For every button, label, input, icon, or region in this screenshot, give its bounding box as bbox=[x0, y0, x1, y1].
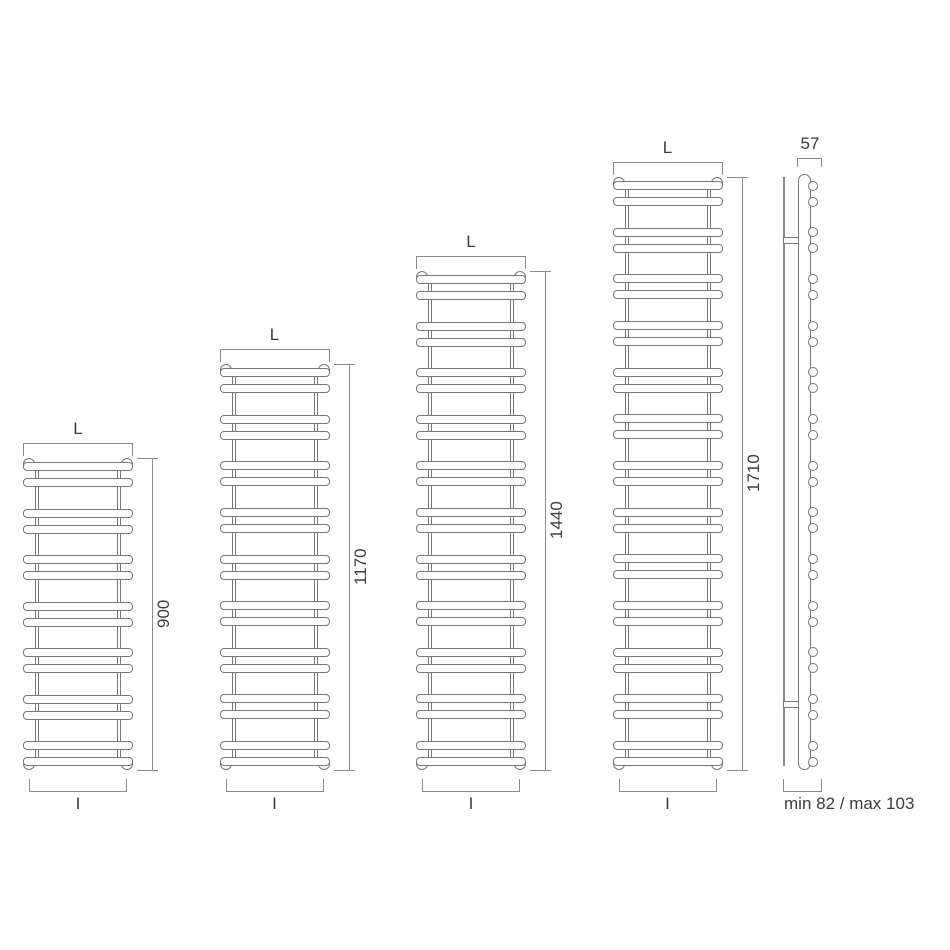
towel-bar bbox=[416, 291, 526, 300]
side-rail-left bbox=[625, 181, 629, 766]
towel-bar bbox=[613, 384, 723, 393]
towel-bar bbox=[613, 321, 723, 330]
fixing-dim-label: I bbox=[220, 795, 330, 814]
bar-end-circle bbox=[808, 430, 818, 440]
height-dim-line bbox=[152, 458, 153, 770]
height-dim-label: 1710 bbox=[745, 177, 764, 770]
towel-bar bbox=[220, 415, 330, 424]
bar-end-circle bbox=[808, 617, 818, 627]
width-dim-tick bbox=[132, 443, 133, 456]
width-dim-tick bbox=[525, 256, 526, 269]
height-dim-line bbox=[349, 364, 350, 770]
width-dim-tick bbox=[416, 256, 417, 269]
bar-end-circle bbox=[808, 290, 818, 300]
width-dim-line bbox=[416, 256, 526, 257]
wall-distance-dim-tick bbox=[783, 779, 784, 792]
wall-bracket bbox=[783, 237, 799, 244]
towel-bar bbox=[416, 477, 526, 486]
bar-end-circle bbox=[808, 181, 818, 191]
towel-bar bbox=[613, 694, 723, 703]
fixing-dim-tick bbox=[519, 779, 520, 792]
towel-bar bbox=[613, 274, 723, 283]
towel-bar bbox=[416, 322, 526, 331]
bar-end-circle bbox=[808, 757, 818, 767]
towel-bar bbox=[613, 181, 723, 190]
towel-bar bbox=[613, 477, 723, 486]
fixing-dim-tick bbox=[226, 779, 227, 792]
towel-bar bbox=[416, 275, 526, 284]
towel-bar bbox=[220, 741, 330, 750]
height-dim-line bbox=[545, 271, 546, 770]
bar-end-circle bbox=[808, 694, 818, 704]
towel-bar bbox=[220, 710, 330, 719]
width-dim-tick bbox=[329, 349, 330, 362]
towel-bar bbox=[613, 228, 723, 237]
towel-bar bbox=[23, 618, 133, 627]
towel-bar bbox=[613, 601, 723, 610]
fixing-dim-tick bbox=[126, 779, 127, 792]
width-dim-tick bbox=[722, 162, 723, 175]
fixing-dim-line bbox=[29, 791, 127, 792]
height-dim-tick bbox=[530, 770, 551, 771]
towel-bar bbox=[613, 244, 723, 253]
fixing-dim-line bbox=[226, 791, 324, 792]
radiator-front-view-900 bbox=[23, 458, 133, 770]
diagram-canvas: L900IL1170IL1440IL1710I57min 82 / max 10… bbox=[0, 0, 950, 950]
bar-end-circle bbox=[808, 601, 818, 611]
bar-end-circle bbox=[808, 414, 818, 424]
wall-distance-dim-tick bbox=[821, 779, 822, 792]
towel-bar bbox=[416, 648, 526, 657]
towel-bar bbox=[220, 617, 330, 626]
depth-dim-tick bbox=[821, 158, 822, 167]
fixing-dim-tick bbox=[323, 779, 324, 792]
towel-bar bbox=[613, 337, 723, 346]
towel-bar bbox=[220, 431, 330, 440]
towel-bar bbox=[416, 664, 526, 673]
towel-bar bbox=[220, 461, 330, 470]
towel-bar bbox=[613, 741, 723, 750]
towel-bar bbox=[613, 617, 723, 626]
height-dim-tick bbox=[727, 770, 748, 771]
towel-bar bbox=[220, 694, 330, 703]
towel-bar bbox=[416, 524, 526, 533]
height-dim-line bbox=[742, 177, 743, 770]
towel-bar bbox=[416, 601, 526, 610]
towel-bar bbox=[416, 694, 526, 703]
towel-bar bbox=[416, 338, 526, 347]
fixing-dim-label: I bbox=[416, 795, 526, 814]
towel-bar bbox=[220, 757, 330, 766]
towel-bar bbox=[613, 757, 723, 766]
bar-end-circle bbox=[808, 741, 818, 751]
side-rail-right bbox=[117, 462, 121, 766]
bar-end-circle bbox=[808, 554, 818, 564]
towel-bar bbox=[613, 290, 723, 299]
width-dim-label: L bbox=[416, 233, 526, 252]
towel-bar bbox=[613, 368, 723, 377]
towel-bar bbox=[416, 384, 526, 393]
radiator-front-view-1440 bbox=[416, 271, 526, 770]
width-dim-tick bbox=[220, 349, 221, 362]
towel-bar bbox=[23, 664, 133, 673]
bar-end-circle bbox=[808, 710, 818, 720]
width-dim-line bbox=[220, 349, 330, 350]
fixing-dim-tick bbox=[716, 779, 717, 792]
width-dim-line bbox=[613, 162, 723, 163]
bar-end-circle bbox=[808, 570, 818, 580]
towel-bar bbox=[23, 525, 133, 534]
towel-bar bbox=[416, 461, 526, 470]
width-dim-tick bbox=[23, 443, 24, 456]
towel-bar bbox=[613, 461, 723, 470]
towel-bar bbox=[416, 757, 526, 766]
width-dim-tick bbox=[613, 162, 614, 175]
towel-bar bbox=[613, 554, 723, 563]
towel-bar bbox=[220, 664, 330, 673]
fixing-dim-tick bbox=[422, 779, 423, 792]
height-dim-label: 900 bbox=[155, 458, 174, 770]
towel-bar bbox=[613, 524, 723, 533]
towel-bar bbox=[23, 571, 133, 580]
towel-bar bbox=[220, 368, 330, 377]
depth-dim-label: 57 bbox=[786, 135, 834, 154]
towel-bar bbox=[416, 368, 526, 377]
bar-end-circle bbox=[808, 197, 818, 207]
towel-bar bbox=[613, 648, 723, 657]
fixing-dim-label: I bbox=[613, 795, 723, 814]
towel-bar bbox=[220, 477, 330, 486]
towel-bar bbox=[416, 741, 526, 750]
wall-distance-label: min 82 / max 103 bbox=[784, 795, 944, 814]
height-dim-tick bbox=[137, 770, 158, 771]
side-tube bbox=[798, 174, 811, 770]
radiator-front-view-1710 bbox=[613, 177, 723, 770]
height-dim-tick bbox=[334, 770, 355, 771]
side-rail-left bbox=[35, 462, 39, 766]
towel-bar bbox=[613, 710, 723, 719]
towel-bar bbox=[416, 431, 526, 440]
towel-bar bbox=[23, 555, 133, 564]
towel-bar bbox=[23, 711, 133, 720]
towel-bar bbox=[416, 508, 526, 517]
bar-end-circle bbox=[808, 321, 818, 331]
height-dim-label: 1170 bbox=[352, 364, 371, 770]
fixing-dim-line bbox=[422, 791, 520, 792]
side-rail-right bbox=[707, 181, 711, 766]
side-rail-right bbox=[510, 275, 514, 766]
towel-bar bbox=[23, 478, 133, 487]
towel-bar bbox=[23, 602, 133, 611]
bar-end-circle bbox=[808, 461, 818, 471]
towel-bar bbox=[416, 710, 526, 719]
towel-bar bbox=[416, 415, 526, 424]
towel-bar bbox=[23, 757, 133, 766]
towel-bar bbox=[613, 430, 723, 439]
towel-bar bbox=[23, 509, 133, 518]
towel-bar bbox=[220, 555, 330, 564]
towel-bar bbox=[23, 462, 133, 471]
towel-bar bbox=[220, 601, 330, 610]
fixing-dim-tick bbox=[619, 779, 620, 792]
towel-bar bbox=[416, 571, 526, 580]
towel-bar bbox=[23, 648, 133, 657]
towel-bar bbox=[23, 695, 133, 704]
radiator-front-view-1170 bbox=[220, 364, 330, 770]
width-dim-label: L bbox=[613, 139, 723, 158]
towel-bar bbox=[613, 197, 723, 206]
towel-bar bbox=[220, 524, 330, 533]
towel-bar bbox=[220, 384, 330, 393]
wall-bracket bbox=[783, 701, 799, 708]
towel-bar bbox=[23, 741, 133, 750]
depth-dim-tick bbox=[797, 158, 798, 167]
wall-line bbox=[783, 177, 785, 766]
towel-bar bbox=[613, 570, 723, 579]
bar-end-circle bbox=[808, 337, 818, 347]
bar-end-circle bbox=[808, 477, 818, 487]
side-rail-left bbox=[428, 275, 432, 766]
towel-bar bbox=[220, 571, 330, 580]
width-dim-label: L bbox=[220, 326, 330, 345]
width-dim-line bbox=[23, 443, 133, 444]
towel-bar bbox=[613, 508, 723, 517]
towel-bar bbox=[220, 508, 330, 517]
height-dim-label: 1440 bbox=[548, 271, 567, 770]
side-rail-right bbox=[314, 368, 318, 766]
towel-bar bbox=[613, 414, 723, 423]
fixing-dim-label: I bbox=[23, 795, 133, 814]
towel-bar bbox=[416, 617, 526, 626]
towel-bar bbox=[613, 664, 723, 673]
side-rail-left bbox=[232, 368, 236, 766]
depth-dim-line bbox=[797, 158, 822, 159]
bar-end-circle bbox=[808, 274, 818, 284]
fixing-dim-tick bbox=[29, 779, 30, 792]
width-dim-label: L bbox=[23, 420, 133, 439]
wall-distance-dim-line bbox=[783, 791, 822, 792]
towel-bar bbox=[220, 648, 330, 657]
towel-bar bbox=[416, 555, 526, 564]
fixing-dim-line bbox=[619, 791, 717, 792]
